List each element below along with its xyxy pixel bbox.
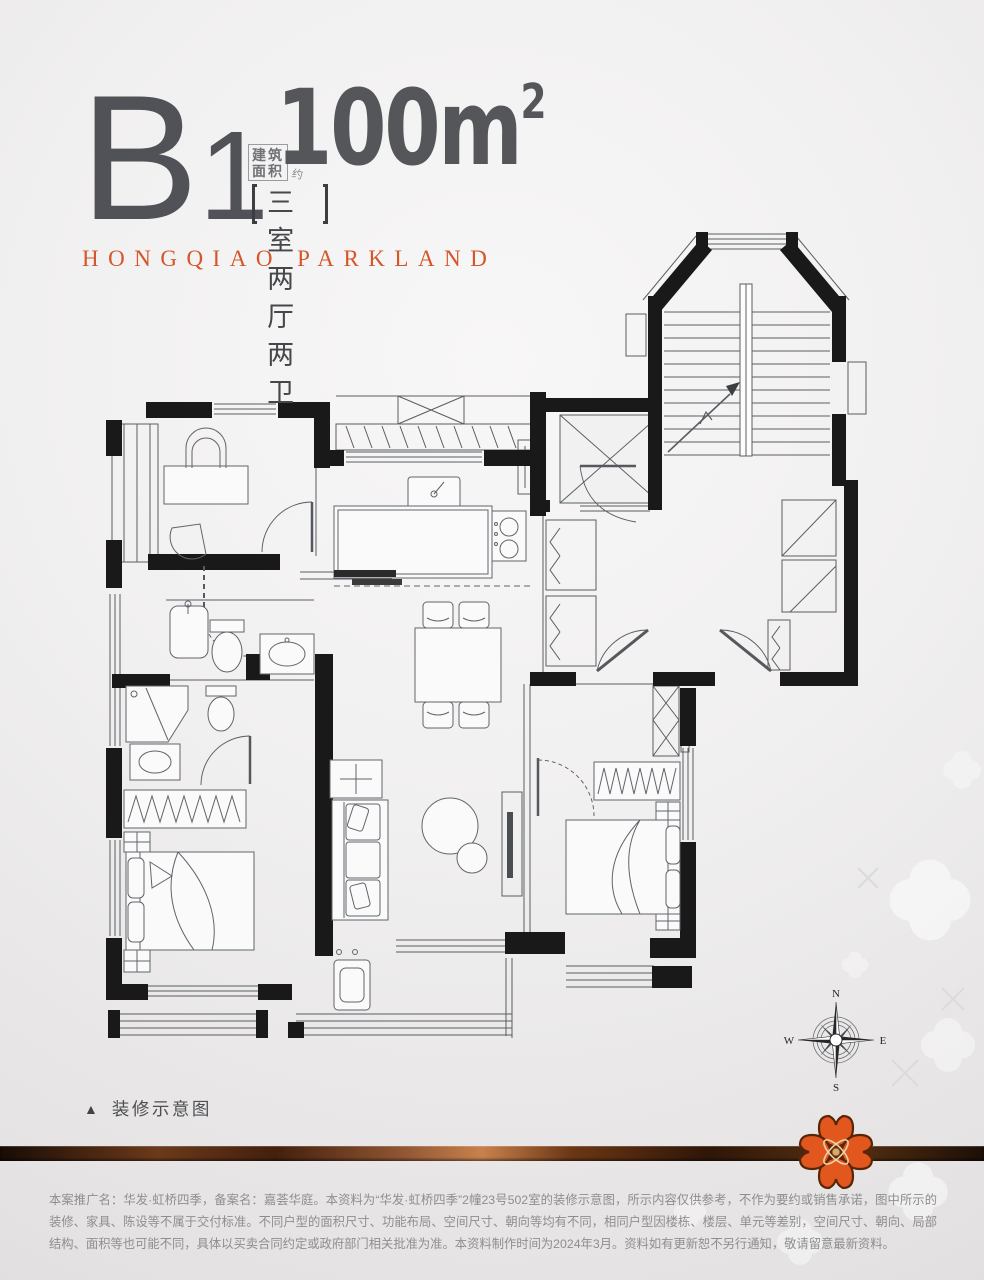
disclaimer-text: 本案推广名：华发·虹桥四季，备案名：嘉荟华庭。本资料为“华发·虹桥四季”2幢23…: [49, 1190, 937, 1256]
area-number: 100m: [276, 80, 521, 176]
bathroom-1-fixtures: [170, 601, 314, 674]
plan-code: B 1: [80, 78, 269, 256]
compass-east-label: E: [880, 1035, 887, 1047]
compass-north-label: N: [832, 988, 840, 1000]
furniture: [124, 428, 680, 1010]
triangle-marker-icon: ▲: [84, 1101, 98, 1117]
layout-tag: 三室两厅两卫: [252, 184, 328, 224]
layout-label: 三室两厅两卫: [257, 184, 323, 224]
area-exponent: 2: [521, 78, 547, 126]
area-value: 100m 2: [276, 80, 547, 176]
compass-south-label: S: [833, 1082, 839, 1094]
bedroom2-furniture: [566, 762, 680, 930]
balcony-railing: [296, 958, 512, 1038]
caption: ▲ 装修示意图: [84, 1096, 212, 1121]
living-room-furniture: [330, 760, 513, 1010]
bracket-right: [323, 184, 328, 224]
bathroom-2-fixtures: [126, 686, 236, 780]
plan-code-letter: B: [80, 78, 195, 238]
brand-name: HONGQIAO PARKLAND: [82, 246, 496, 272]
foyer-cabinets: [546, 500, 836, 670]
study-furniture: [164, 428, 248, 559]
kitchen-fixtures: [334, 477, 534, 586]
staircase: [664, 284, 830, 456]
dining-set: [415, 602, 501, 728]
master-bedroom-furniture: [124, 790, 254, 972]
caption-label: 装修示意图: [112, 1096, 212, 1121]
compass-west-label: W: [784, 1035, 795, 1047]
compass-rose: N E S W: [782, 986, 890, 1099]
floorplan-poster: B 1 建筑 面积 约 100m 2 三室两厅两卫 HONGQIAO PARKL…: [0, 0, 984, 1280]
compass-points: [798, 1002, 874, 1078]
